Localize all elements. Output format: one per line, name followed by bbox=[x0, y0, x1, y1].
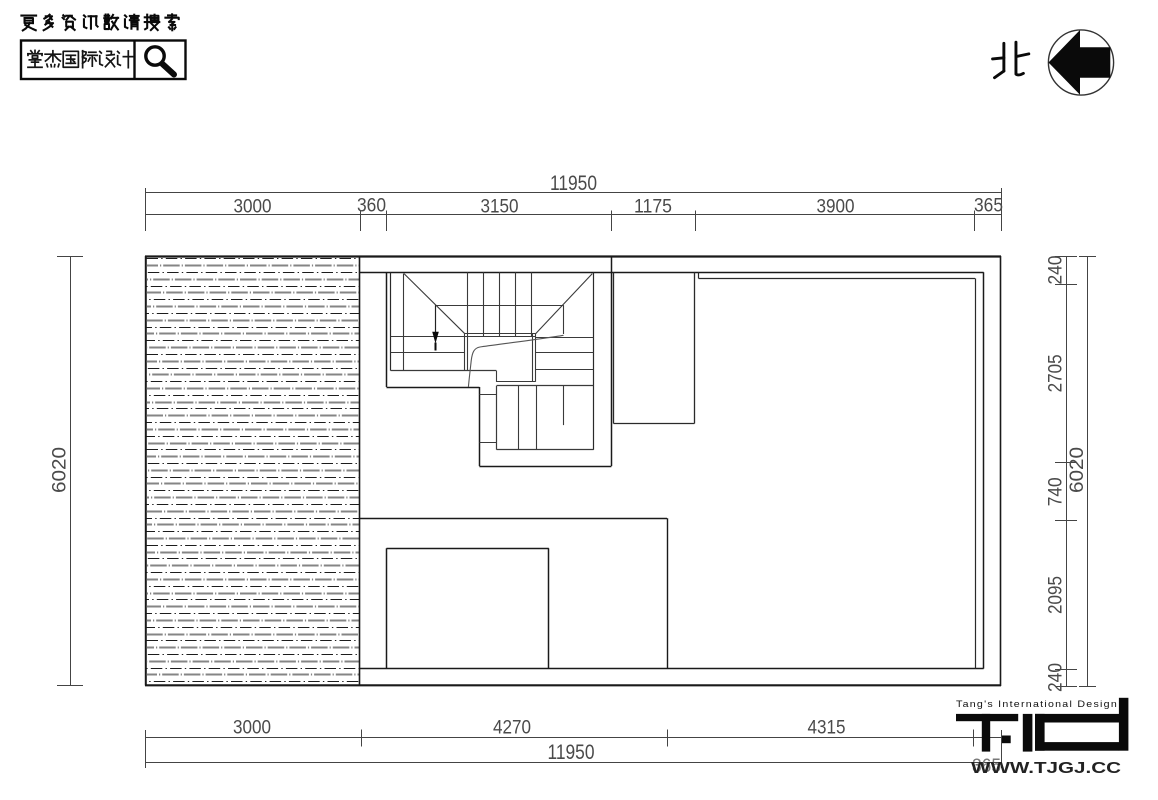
svg-text:3000: 3000 bbox=[233, 718, 271, 739]
svg-text:11950: 11950 bbox=[550, 172, 597, 195]
svg-text:6020: 6020 bbox=[1067, 447, 1088, 493]
svg-text:3000: 3000 bbox=[234, 197, 272, 218]
svg-text:2705: 2705 bbox=[1046, 354, 1067, 392]
svg-text:1175: 1175 bbox=[634, 197, 672, 218]
svg-text:3900: 3900 bbox=[817, 197, 855, 218]
svg-text:3150: 3150 bbox=[481, 197, 519, 218]
svg-text:365: 365 bbox=[974, 196, 1003, 217]
svg-text:4315: 4315 bbox=[808, 718, 846, 739]
svg-text:2095: 2095 bbox=[1046, 576, 1067, 614]
svg-text:Tang's International Design: Tang's International Design bbox=[956, 699, 1118, 709]
svg-text:4270: 4270 bbox=[493, 718, 531, 739]
svg-text:6020: 6020 bbox=[50, 447, 71, 493]
svg-text:360: 360 bbox=[357, 196, 386, 217]
svg-text:740: 740 bbox=[1046, 477, 1067, 506]
svg-text:240: 240 bbox=[1046, 663, 1067, 692]
svg-text:11950: 11950 bbox=[548, 741, 595, 764]
svg-text:240: 240 bbox=[1046, 256, 1067, 285]
svg-text:WWW.TJGJ.CC: WWW.TJGJ.CC bbox=[971, 760, 1122, 777]
